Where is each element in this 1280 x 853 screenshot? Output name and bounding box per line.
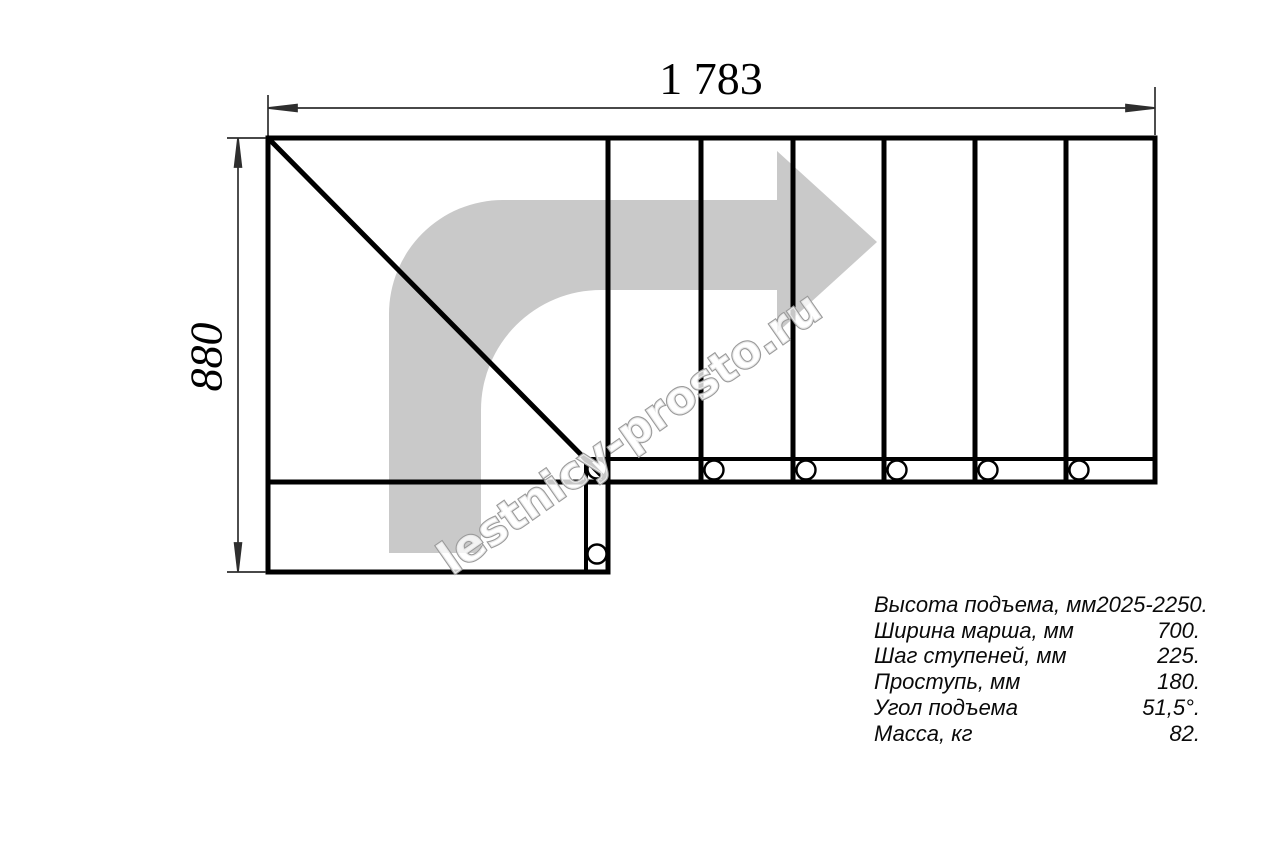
baluster-hole	[888, 461, 907, 480]
spec-row: Шаг ступеней, мм 225.	[874, 643, 1200, 669]
spec-row: Ширина марша, мм 700.	[874, 618, 1200, 644]
spec-label: Проступь, мм	[874, 669, 1020, 695]
spec-label: Ширина марша, мм	[874, 618, 1074, 644]
spec-row: Масса, кг 82.	[874, 721, 1200, 747]
staircase-drawing-canvas: lestnicy-prosto.ru 1 783 880 Высота подъ…	[0, 0, 1280, 853]
spec-row: Высота подъема, мм 2025-2250.	[874, 592, 1200, 618]
baluster-hole	[797, 461, 816, 480]
spec-label: Масса, кг	[874, 721, 973, 747]
spec-value: 51,5°.	[1142, 695, 1200, 721]
specs-table: Высота подъема, мм 2025-2250. Ширина мар…	[874, 592, 1200, 746]
dimension-width-label: 1 783	[659, 52, 763, 105]
baluster-hole	[588, 545, 607, 564]
spec-label: Высота подъема, мм	[874, 592, 1096, 618]
direction-arrow	[389, 151, 877, 553]
dimension-height	[227, 138, 266, 572]
dimension-arrowhead	[235, 138, 242, 167]
dimension-arrowhead	[1126, 105, 1155, 112]
spec-row: Проступь, мм 180.	[874, 669, 1200, 695]
spec-row: Угол подъема 51,5°.	[874, 695, 1200, 721]
spec-value: 180.	[1157, 669, 1200, 695]
dimension-height-label: 880	[180, 323, 233, 392]
dimension-arrowhead	[268, 105, 297, 112]
spec-value: 700.	[1157, 618, 1200, 644]
spec-value: 225.	[1157, 643, 1200, 669]
spec-value: 82.	[1169, 721, 1200, 747]
spec-label: Угол подъема	[874, 695, 1018, 721]
spec-value: 2025-2250.	[1096, 592, 1207, 618]
baluster-hole	[705, 461, 724, 480]
dimension-arrowhead	[235, 543, 242, 572]
spec-label: Шаг ступеней, мм	[874, 643, 1067, 669]
baluster-hole	[979, 461, 998, 480]
baluster-holes	[588, 460, 1089, 564]
baluster-hole	[1070, 461, 1089, 480]
